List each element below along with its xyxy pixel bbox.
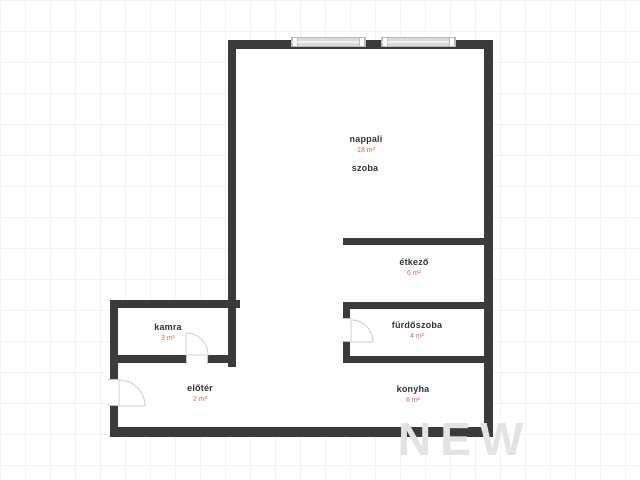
room-area-furdoszoba: 4 m²: [392, 333, 443, 340]
room-name-nappali: nappali: [350, 134, 383, 144]
window-1: [291, 37, 366, 47]
floorplan-canvas: nappali 18 m² szoba étkező 6 m² fürdőszo…: [0, 0, 640, 480]
window-2-glass: [382, 41, 455, 43]
room-label-szoba: szoba: [352, 163, 379, 173]
window-1-cap-right: [359, 38, 365, 46]
window-1-glass: [292, 41, 365, 43]
room-name-szoba: szoba: [352, 163, 379, 173]
room-label-konyha: konyha 6 m²: [397, 384, 430, 404]
wall-left: [110, 300, 118, 437]
room-name-kamra: kamra: [154, 322, 182, 332]
window-2: [381, 37, 456, 47]
room-label-eloter: előtér 2 m²: [187, 383, 213, 403]
room-name-konyha: konyha: [397, 384, 430, 394]
room-label-etkezo: étkező 6 m²: [399, 257, 428, 277]
room-area-etkezo: 6 m²: [399, 270, 428, 277]
room-label-furdoszoba: fürdőszoba 4 m²: [392, 320, 443, 340]
watermark-text: NEW: [398, 410, 640, 480]
wall-furdoszoba-left-upper: [343, 302, 350, 318]
room-label-kamra: kamra 3 m²: [154, 322, 182, 342]
door-entrance-threshold: [108, 379, 119, 406]
wall-furdoszoba-top: [343, 302, 484, 309]
wall-etkezo-divider: [343, 238, 484, 245]
room-label-nappali: nappali 18 m²: [350, 134, 383, 154]
door-furdoszoba-threshold: [342, 318, 351, 342]
wall-kamra-bottom-right: [208, 355, 236, 363]
window-2-cap-right: [449, 38, 455, 46]
wall-right: [484, 40, 493, 437]
door-kamra-threshold: [186, 354, 208, 364]
wall-kamra-top: [110, 300, 240, 308]
room-name-furdoszoba: fürdőszoba: [392, 320, 443, 330]
room-area-nappali: 18 m²: [350, 147, 383, 154]
room-area-konyha: 6 m²: [397, 397, 430, 404]
wall-kamra-bottom-left: [110, 355, 186, 363]
room-area-kamra: 3 m²: [154, 335, 182, 342]
room-area-eloter: 2 m²: [187, 396, 213, 403]
room-name-eloter: előtér: [187, 383, 213, 393]
floor-extension: [110, 300, 240, 437]
wall-mid-vertical: [228, 40, 236, 367]
room-name-etkezo: étkező: [399, 257, 428, 267]
wall-furdoszoba-bottom: [343, 356, 484, 363]
